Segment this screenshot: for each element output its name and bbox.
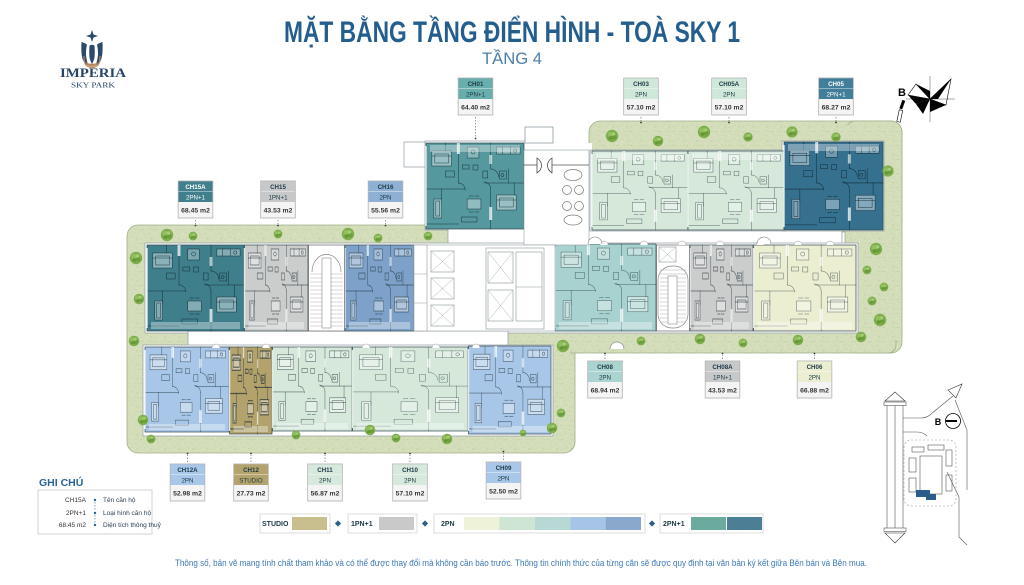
svg-text:2PN: 2PN bbox=[808, 374, 820, 381]
svg-text:B: B bbox=[898, 87, 906, 99]
svg-text:Loại hình căn hộ: Loại hình căn hộ bbox=[103, 510, 151, 517]
svg-text:Tên căn hộ: Tên căn hộ bbox=[103, 497, 136, 504]
svg-text:2PN: 2PN bbox=[441, 521, 455, 528]
svg-text:CH16: CH16 bbox=[378, 184, 394, 191]
svg-text:SKY PARK: SKY PARK bbox=[71, 81, 116, 90]
svg-text:52.98 m2: 52.98 m2 bbox=[173, 491, 202, 498]
svg-text:CH15A: CH15A bbox=[65, 497, 87, 504]
svg-text:CH15: CH15 bbox=[270, 184, 286, 191]
svg-text:2PN: 2PN bbox=[599, 374, 611, 381]
svg-text:TẦNG 4: TẦNG 4 bbox=[482, 49, 542, 68]
svg-text:Thông số, bản vẽ mang tính chấ: Thông số, bản vẽ mang tính chất tham khả… bbox=[175, 558, 867, 568]
svg-text:52.50 m2: 52.50 m2 bbox=[489, 489, 518, 496]
svg-text:2PN: 2PN bbox=[723, 91, 735, 98]
svg-text:CH08A: CH08A bbox=[712, 364, 733, 371]
svg-text:68.45 m2: 68.45 m2 bbox=[59, 522, 86, 529]
svg-text:CH05A: CH05A bbox=[719, 81, 740, 88]
svg-text:57.10 m2: 57.10 m2 bbox=[715, 105, 744, 112]
svg-text:CH11: CH11 bbox=[317, 467, 333, 474]
svg-text:2PN+1: 2PN+1 bbox=[663, 521, 685, 528]
svg-text:CH05: CH05 bbox=[828, 81, 844, 88]
svg-text:CH10: CH10 bbox=[402, 467, 418, 474]
svg-text:68.45 m2: 68.45 m2 bbox=[181, 208, 210, 215]
svg-text:43.53 m2: 43.53 m2 bbox=[264, 208, 293, 215]
svg-text:43.53 m2: 43.53 m2 bbox=[708, 388, 737, 395]
svg-text:57.10 m2: 57.10 m2 bbox=[396, 491, 425, 498]
svg-text:IMPERIA: IMPERIA bbox=[60, 65, 127, 80]
svg-text:CH01: CH01 bbox=[468, 81, 484, 88]
svg-text:2PN+1: 2PN+1 bbox=[186, 194, 206, 201]
svg-text:B: B bbox=[935, 417, 942, 427]
svg-text:1PN+1: 1PN+1 bbox=[351, 521, 373, 528]
svg-text:68.94 m2: 68.94 m2 bbox=[591, 388, 620, 395]
svg-text:STUDIO: STUDIO bbox=[239, 477, 263, 484]
svg-text:55.56 m2: 55.56 m2 bbox=[371, 208, 400, 215]
svg-text:CH03: CH03 bbox=[633, 81, 649, 88]
svg-text:2PN+1: 2PN+1 bbox=[826, 91, 846, 98]
svg-text:57.10 m2: 57.10 m2 bbox=[627, 105, 656, 112]
svg-text:2PN: 2PN bbox=[635, 91, 647, 98]
svg-text:68.27 m2: 68.27 m2 bbox=[822, 105, 851, 112]
svg-text:2PN: 2PN bbox=[181, 477, 193, 484]
svg-text:1PN+1: 1PN+1 bbox=[713, 374, 733, 381]
svg-text:STUDIO: STUDIO bbox=[262, 521, 289, 528]
svg-text:Diện tích thông thuỷ: Diện tích thông thuỷ bbox=[103, 522, 162, 529]
svg-text:2PN: 2PN bbox=[319, 477, 331, 484]
svg-text:64.40 m2: 64.40 m2 bbox=[461, 105, 490, 112]
svg-text:CH15A: CH15A bbox=[185, 184, 206, 191]
svg-text:MẶT BẰNG TẦNG ĐIỂN HÌNH - TOÀ: MẶT BẰNG TẦNG ĐIỂN HÌNH - TOÀ SKY 1 bbox=[284, 15, 740, 49]
svg-text:1PN+1: 1PN+1 bbox=[268, 194, 288, 201]
svg-text:CH09: CH09 bbox=[496, 465, 512, 472]
svg-text:66.88 m2: 66.88 m2 bbox=[800, 388, 829, 395]
svg-text:CH08: CH08 bbox=[597, 364, 613, 371]
svg-text:27.73 m2: 27.73 m2 bbox=[237, 491, 266, 498]
svg-text:GHI CHÚ: GHI CHÚ bbox=[39, 476, 83, 489]
svg-text:2PN: 2PN bbox=[497, 475, 509, 482]
svg-text:2PN: 2PN bbox=[404, 477, 416, 484]
svg-text:56.87 m2: 56.87 m2 bbox=[311, 491, 340, 498]
svg-text:2PN: 2PN bbox=[379, 194, 391, 201]
svg-text:CH12: CH12 bbox=[243, 467, 259, 474]
svg-text:2PN+1: 2PN+1 bbox=[466, 91, 486, 98]
svg-text:CH12A: CH12A bbox=[177, 467, 198, 474]
svg-text:2PN+1: 2PN+1 bbox=[66, 510, 86, 517]
svg-text:CH06: CH06 bbox=[807, 364, 823, 371]
